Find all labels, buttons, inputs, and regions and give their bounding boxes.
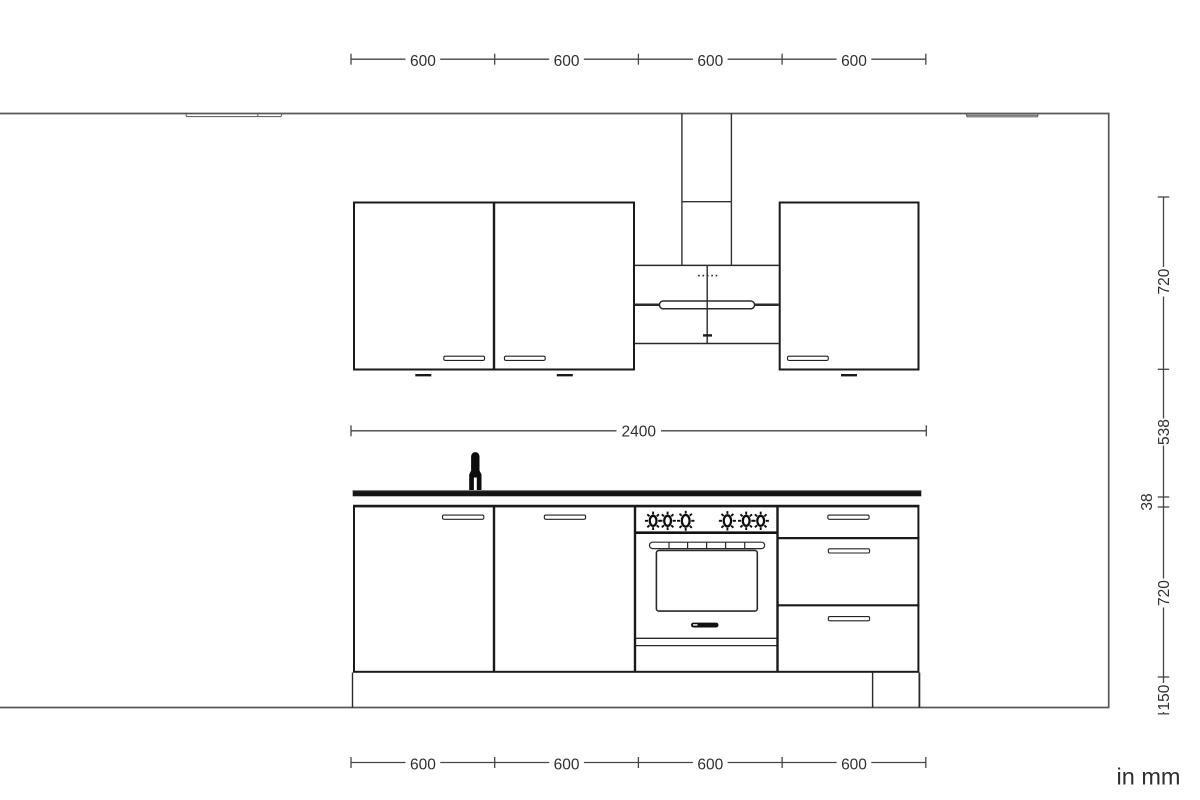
svg-text:2400: 2400 — [621, 423, 656, 440]
svg-text:600: 600 — [841, 756, 867, 773]
svg-text:in mm: in mm — [1117, 764, 1181, 790]
svg-text:150: 150 — [1156, 684, 1173, 710]
svg-text:720: 720 — [1156, 268, 1173, 294]
svg-text:720: 720 — [1156, 580, 1173, 606]
svg-text:600: 600 — [410, 53, 436, 70]
svg-text:600: 600 — [697, 53, 723, 70]
svg-text:600: 600 — [410, 756, 436, 773]
svg-text:600: 600 — [841, 53, 867, 70]
svg-text:38: 38 — [1139, 493, 1156, 510]
svg-text:538: 538 — [1156, 419, 1173, 445]
svg-text:600: 600 — [554, 53, 580, 70]
svg-text:600: 600 — [554, 756, 580, 773]
svg-text:600: 600 — [697, 756, 723, 773]
